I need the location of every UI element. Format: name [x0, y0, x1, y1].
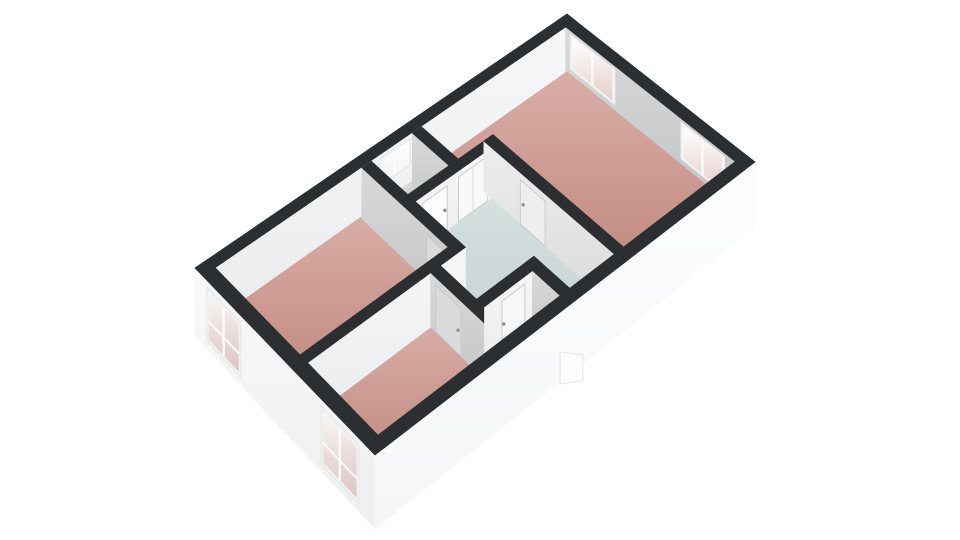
door-closet-handle: [502, 322, 505, 325]
door-toilet-handle: [443, 209, 446, 212]
door-living-handle: [522, 203, 525, 206]
door-bedroom-2-handle: [456, 329, 459, 332]
floorplan-canvas: [0, 0, 960, 540]
floorplan-3d-render: [0, 0, 960, 540]
front-door-open: [560, 352, 583, 384]
